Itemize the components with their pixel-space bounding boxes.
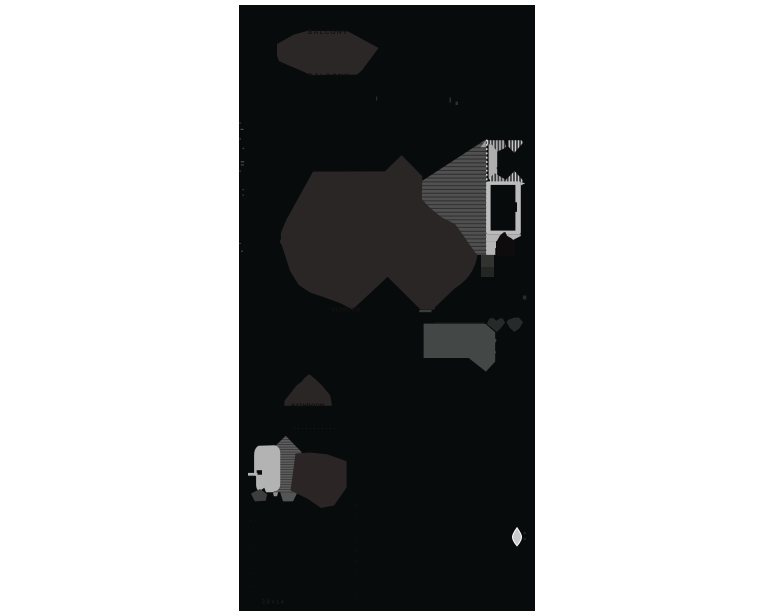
svg-text:2.8 x 1.4: 2.8 x 1.4 [262, 600, 284, 606]
svg-text:BEDROOM: BEDROOM [332, 308, 361, 314]
svg-text:BALCONY: BALCONY [308, 29, 348, 36]
svg-text:BATHROOM: BATHROOM [291, 404, 324, 410]
svg-text:BALCONY: BALCONY [308, 73, 350, 80]
